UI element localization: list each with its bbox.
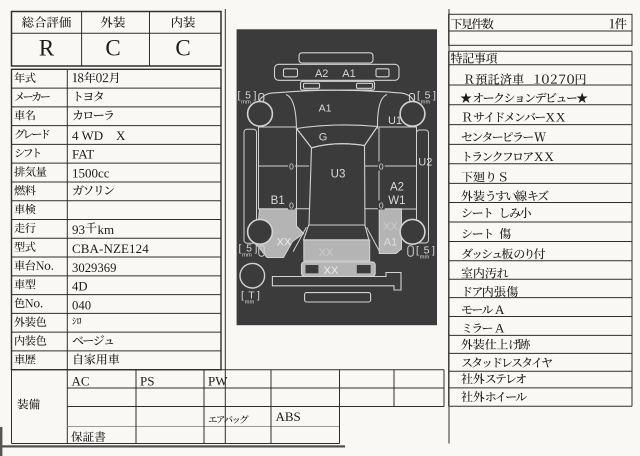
svg-text:km: km — [98, 222, 115, 237]
svg-text:[: [ — [238, 90, 241, 102]
svg-text:0: 0 — [289, 161, 294, 171]
svg-text:[: [ — [239, 243, 242, 255]
svg-text:XX: XX — [534, 149, 555, 164]
svg-text:A: A — [495, 321, 505, 336]
svg-text:W1: W1 — [388, 195, 405, 207]
svg-text:A1: A1 — [342, 68, 355, 80]
svg-text:G: G — [319, 132, 328, 144]
svg-text:4 WD: 4 WD — [72, 128, 103, 143]
svg-text:0: 0 — [379, 200, 384, 210]
svg-text:0: 0 — [379, 161, 384, 171]
svg-text:C: C — [175, 36, 190, 61]
svg-text:XX: XX — [324, 265, 339, 277]
svg-text:R: R — [39, 36, 55, 61]
svg-text:A1: A1 — [319, 103, 332, 115]
svg-text:A: A — [495, 302, 505, 317]
svg-text:C: C — [105, 36, 120, 61]
svg-text:X: X — [116, 128, 126, 143]
svg-text:0: 0 — [289, 200, 294, 210]
svg-text:]: ] — [257, 289, 260, 301]
svg-text:XX: XX — [319, 247, 334, 259]
svg-text:CBA-NZE124: CBA-NZE124 — [72, 241, 149, 256]
svg-text:A2: A2 — [390, 182, 404, 194]
svg-text:B1: B1 — [271, 195, 285, 207]
svg-text:XX: XX — [277, 237, 292, 249]
svg-text:A1: A1 — [384, 237, 397, 249]
svg-text:]: ] — [432, 245, 435, 257]
svg-text:[: [ — [241, 289, 244, 301]
svg-text:]: ] — [255, 243, 258, 255]
svg-text:]: ] — [433, 90, 436, 102]
svg-text:mm: mm — [245, 300, 255, 306]
svg-text:PS: PS — [140, 374, 154, 389]
svg-text:ABS: ABS — [276, 409, 301, 424]
svg-text:[: [ — [417, 90, 420, 102]
svg-text:]: ] — [254, 90, 257, 102]
svg-text:PW: PW — [208, 374, 228, 389]
svg-text:040: 040 — [72, 298, 91, 312]
svg-text:U2: U2 — [418, 157, 432, 169]
svg-text:4D: 4D — [72, 280, 88, 294]
svg-text:XX: XX — [383, 221, 398, 233]
svg-text:[: [ — [416, 245, 419, 257]
svg-text:XX: XX — [546, 110, 567, 125]
svg-text:FAT: FAT — [72, 147, 94, 162]
svg-text:mm: mm — [242, 253, 252, 259]
svg-text:U3: U3 — [331, 169, 346, 181]
svg-text:mm: mm — [241, 100, 251, 106]
svg-text:mm: mm — [420, 255, 430, 261]
svg-text:1500cc: 1500cc — [72, 165, 110, 180]
svg-text:AC: AC — [72, 374, 90, 389]
svg-text:U1: U1 — [388, 115, 402, 127]
svg-text:A2: A2 — [315, 68, 328, 80]
svg-text:3029369: 3029369 — [72, 261, 116, 275]
svg-text:mm: mm — [421, 100, 431, 106]
svg-text:93: 93 — [72, 222, 85, 237]
